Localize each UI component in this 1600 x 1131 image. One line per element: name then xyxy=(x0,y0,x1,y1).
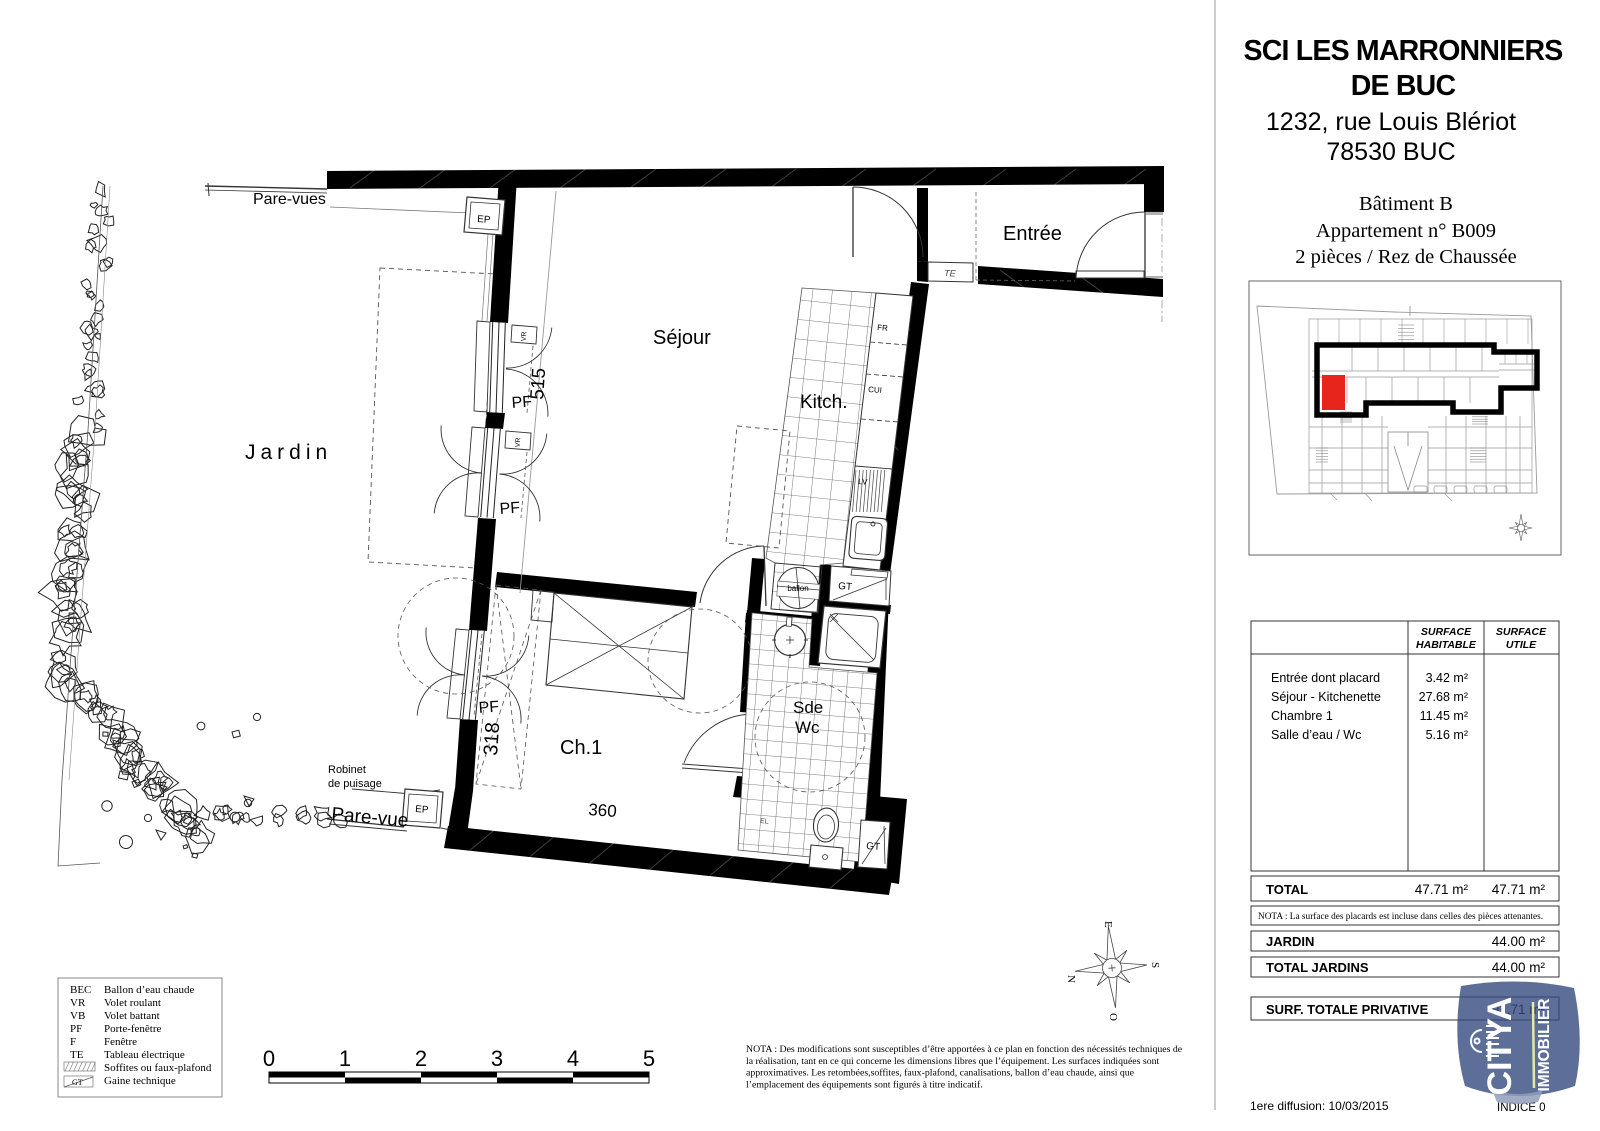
svg-text:S: S xyxy=(1149,962,1161,968)
svg-text:CITYA: CITYA xyxy=(1481,997,1519,1096)
svg-text:IMMOBILIER: IMMOBILIER xyxy=(1536,999,1553,1092)
svg-text:GT: GT xyxy=(838,581,853,593)
svg-text:44.00 m²: 44.00 m² xyxy=(1492,960,1546,975)
svg-text:360: 360 xyxy=(588,800,618,821)
svg-text:approximatives. Les retombées,: approximatives. Les retombées,soffites, … xyxy=(746,1068,1135,1079)
svg-text:TOTAL: TOTAL xyxy=(1266,882,1308,897)
svg-text:NOTA : La surface des placards: NOTA : La surface des placards est inclu… xyxy=(1258,911,1543,922)
svg-text:11.45 m²: 11.45 m² xyxy=(1420,709,1468,723)
svg-text:Sde: Sde xyxy=(793,698,823,717)
svg-text:TE: TE xyxy=(944,268,957,279)
svg-text:Séjour - Kitchenette: Séjour - Kitchenette xyxy=(1271,690,1381,704)
svg-text:Kitch.: Kitch. xyxy=(800,392,848,413)
svg-text:SURFACE: SURFACE xyxy=(1421,626,1472,638)
svg-text:515: 515 xyxy=(527,367,550,400)
svg-text:Bâtiment B: Bâtiment B xyxy=(1359,193,1453,215)
svg-text:l’emplacement des équipements: l’emplacement des équipements sont figur… xyxy=(746,1079,983,1090)
svg-text:Fenêtre: Fenêtre xyxy=(104,1036,137,1048)
svg-text:CUI: CUI xyxy=(868,385,882,395)
svg-text:Entrée: Entrée xyxy=(1003,223,1062,245)
svg-text:Volet battant: Volet battant xyxy=(104,1010,160,1022)
svg-text:Ballon d’eau chaude: Ballon d’eau chaude xyxy=(104,984,195,996)
svg-text:Volet roulant: Volet roulant xyxy=(104,997,161,1009)
svg-text:1ere diffusion: 10/03/2015: 1ere diffusion: 10/03/2015 xyxy=(1250,1099,1389,1113)
svg-text:la réalisation, tant en ce qui: la réalisation, tant en ce qui concerne … xyxy=(746,1056,1160,1067)
svg-text:N: N xyxy=(1065,975,1077,983)
svg-text:PF: PF xyxy=(478,699,500,717)
svg-text:3.42 m²: 3.42 m² xyxy=(1426,671,1468,685)
svg-text:JARDIN: JARDIN xyxy=(1266,934,1314,949)
svg-text:HABITABLE: HABITABLE xyxy=(1416,639,1477,651)
svg-text:5.16 m²: 5.16 m² xyxy=(1426,728,1468,742)
svg-text:UTILE: UTILE xyxy=(1506,639,1537,651)
svg-text:4: 4 xyxy=(567,1046,579,1071)
svg-text:EL: EL xyxy=(760,818,769,826)
svg-text:SURF. TOTALE PRIVATIVE: SURF. TOTALE PRIVATIVE xyxy=(1266,1002,1429,1017)
svg-text:LV: LV xyxy=(858,477,868,487)
svg-text:Soffites ou faux-plafond: Soffites ou faux-plafond xyxy=(104,1062,212,1074)
svg-text:EP: EP xyxy=(477,214,491,226)
svg-text:Wc: Wc xyxy=(795,718,820,737)
svg-text:5: 5 xyxy=(643,1046,655,1071)
svg-text:SCI LES MARRONNIERS: SCI LES MARRONNIERS xyxy=(1244,35,1563,67)
svg-text:Gaine technique: Gaine technique xyxy=(104,1075,176,1087)
svg-text:47.71 m²: 47.71 m² xyxy=(1492,882,1546,897)
svg-text:O: O xyxy=(1107,1013,1119,1021)
svg-text:TE: TE xyxy=(70,1049,84,1061)
svg-text:27.68 m²: 27.68 m² xyxy=(1419,690,1468,704)
svg-text:Porte-fenêtre: Porte-fenêtre xyxy=(104,1023,162,1035)
svg-text:Entrée dont placard: Entrée dont placard xyxy=(1271,671,1380,685)
svg-text:BEC: BEC xyxy=(70,984,91,996)
svg-text:de puisage: de puisage xyxy=(328,778,382,790)
svg-text:TOTAL JARDINS: TOTAL JARDINS xyxy=(1266,960,1369,975)
svg-text:SURFACE: SURFACE xyxy=(1496,626,1547,638)
svg-text:1: 1 xyxy=(339,1046,351,1071)
svg-text:VR: VR xyxy=(515,437,523,447)
svg-text:44.00 m²: 44.00 m² xyxy=(1492,934,1546,949)
svg-text:DE BUC: DE BUC xyxy=(1351,70,1456,102)
svg-text:PF: PF xyxy=(499,500,521,518)
svg-text:Tableau électrique: Tableau électrique xyxy=(104,1049,185,1061)
svg-text:VB: VB xyxy=(70,1010,85,1022)
svg-text:Robinet: Robinet xyxy=(328,764,366,776)
svg-text:E: E xyxy=(1102,921,1114,928)
svg-text:Ch.1: Ch.1 xyxy=(560,737,602,759)
svg-text:Appartement n° B009: Appartement n° B009 xyxy=(1316,220,1496,242)
svg-text:Chambre 1: Chambre 1 xyxy=(1271,709,1333,723)
svg-text:VR: VR xyxy=(70,997,86,1009)
svg-text:Séjour: Séjour xyxy=(653,327,711,349)
svg-text:GT: GT xyxy=(72,1078,83,1087)
svg-text:47.71 m²: 47.71 m² xyxy=(1415,882,1469,897)
svg-text:EP: EP xyxy=(415,804,429,816)
svg-text:Jardin: Jardin xyxy=(245,441,332,464)
svg-text:NOTA : Des modifications sont: NOTA : Des modifications sont susceptibl… xyxy=(746,1044,1183,1055)
svg-text:2: 2 xyxy=(415,1046,427,1071)
svg-text:ballon: ballon xyxy=(787,584,808,593)
svg-text:F: F xyxy=(70,1036,76,1048)
svg-text:3: 3 xyxy=(491,1046,503,1071)
svg-text:2 pièces / Rez de Chaussée: 2 pièces / Rez de Chaussée xyxy=(1295,246,1516,268)
svg-text:1232, rue Louis Blériot: 1232, rue Louis Blériot xyxy=(1266,108,1516,136)
svg-text:78530 BUC: 78530 BUC xyxy=(1326,138,1455,166)
svg-text:318: 318 xyxy=(480,722,504,757)
svg-text:Salle d’eau / Wc: Salle d’eau / Wc xyxy=(1271,728,1361,742)
svg-text:Pare-vues: Pare-vues xyxy=(253,191,326,208)
svg-text:VR: VR xyxy=(521,331,529,341)
svg-text:PF: PF xyxy=(70,1023,82,1035)
svg-text:0: 0 xyxy=(263,1046,275,1071)
svg-text:FR: FR xyxy=(877,323,888,333)
